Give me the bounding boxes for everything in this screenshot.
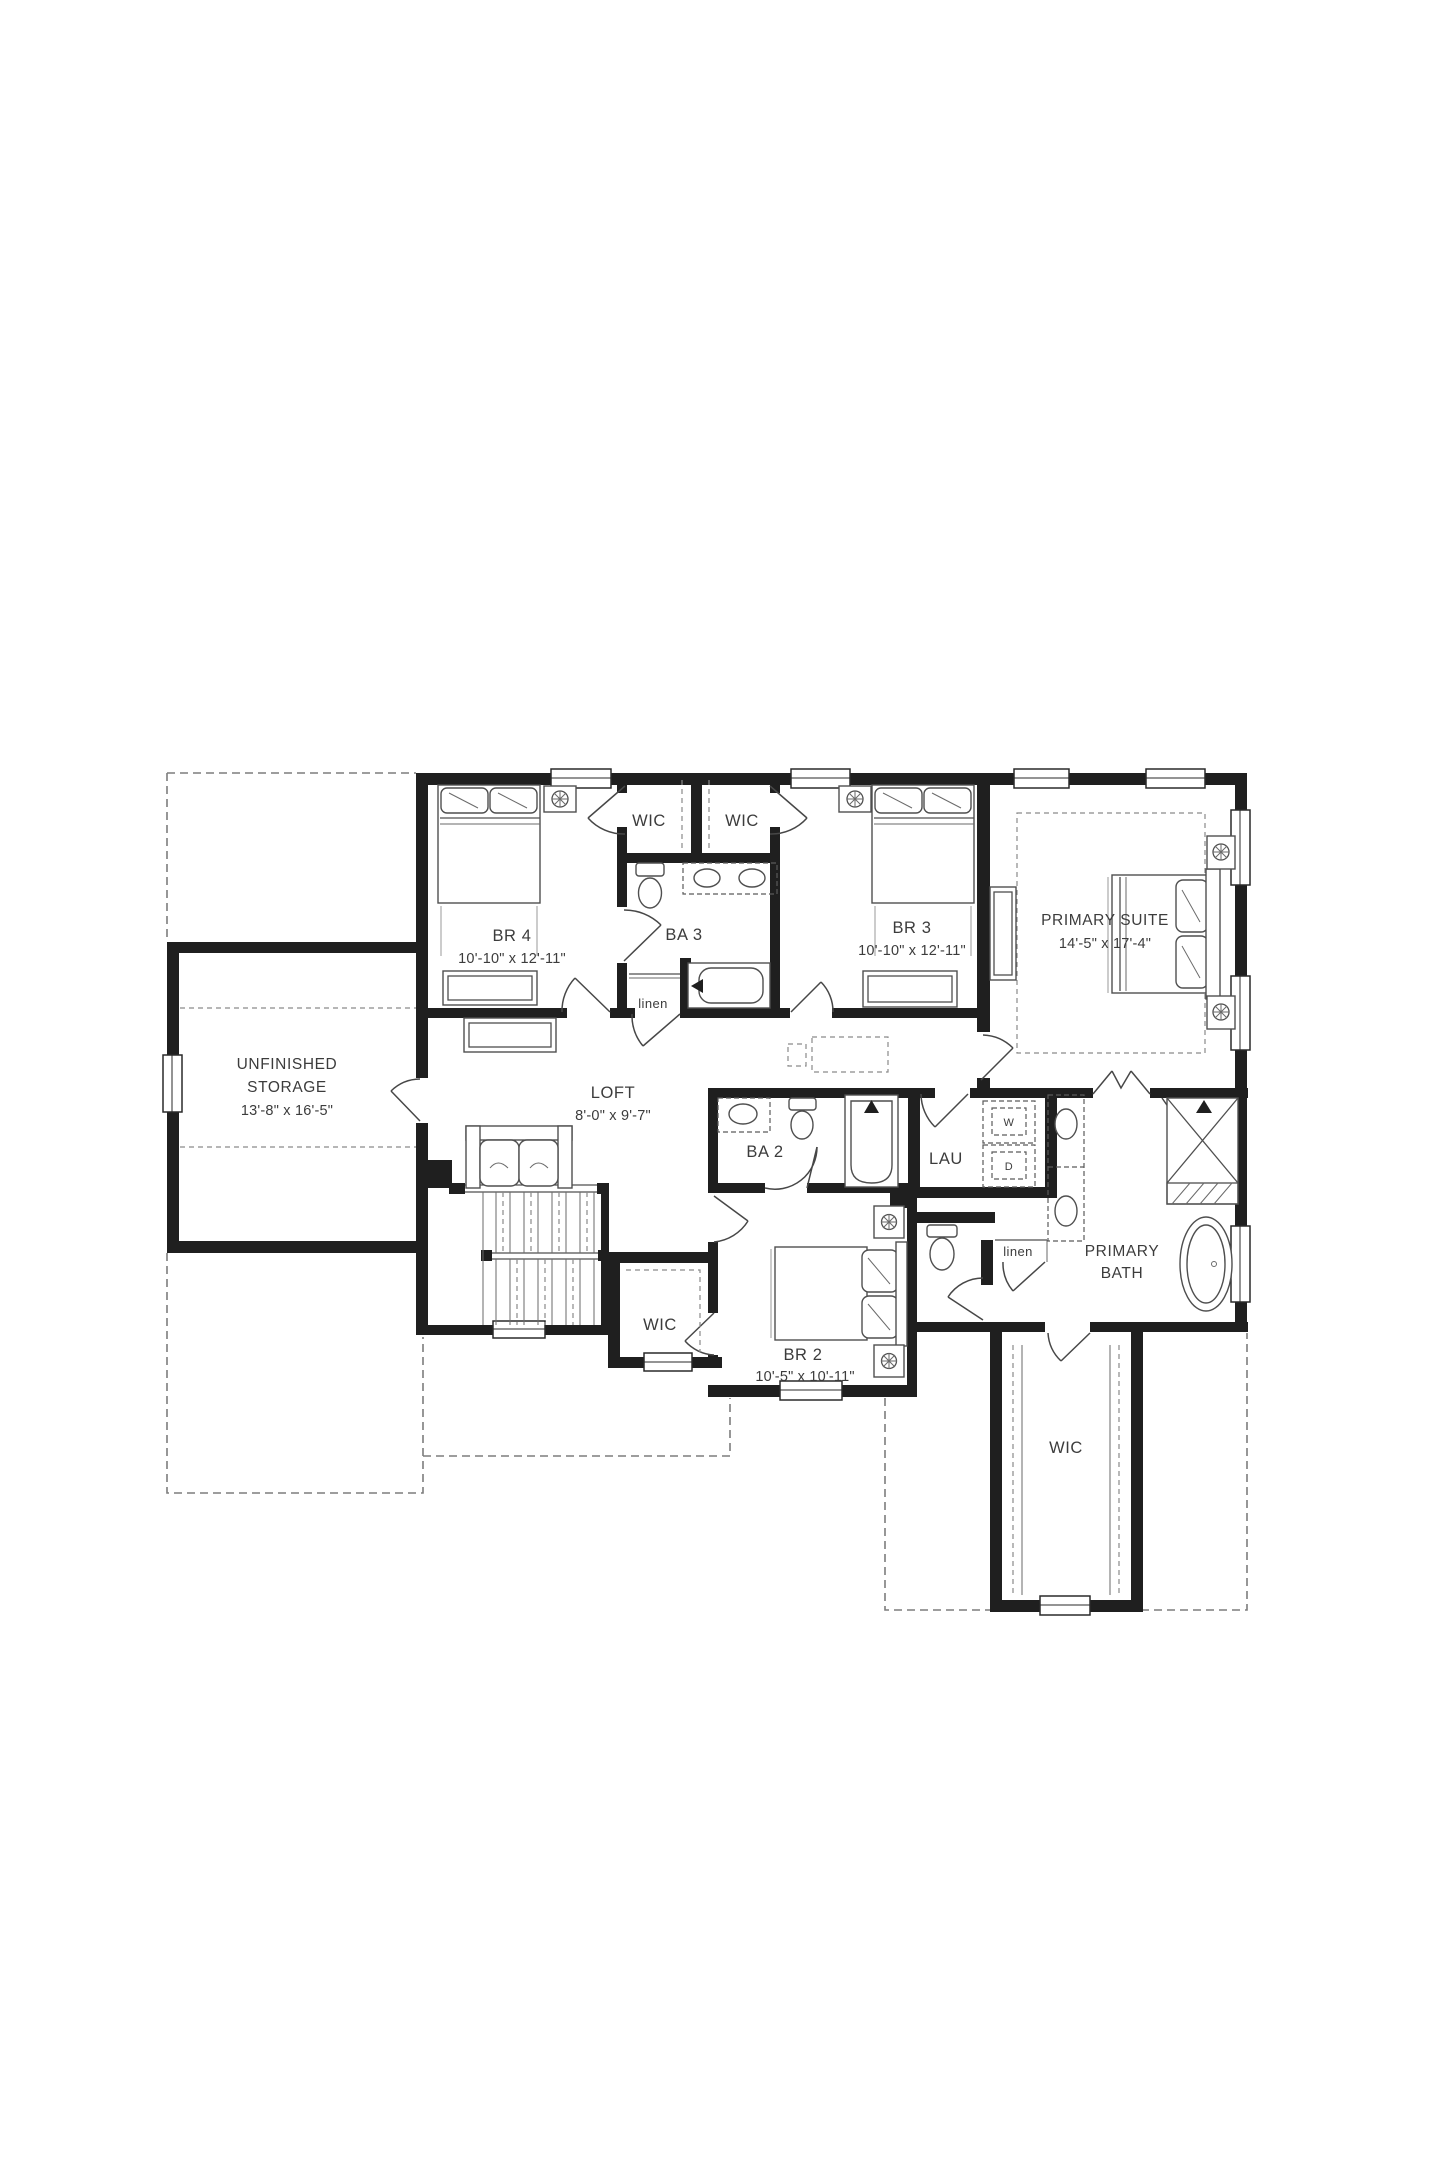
staircase — [449, 1183, 609, 1325]
linen-upper-shelf — [629, 974, 680, 978]
tub-ba3 — [688, 963, 770, 1008]
window-br3-top — [791, 769, 850, 788]
door-br3-entry — [791, 982, 833, 1012]
nightstand-primary-1 — [1207, 836, 1235, 869]
label-linen-lower: linen — [1003, 1244, 1032, 1259]
tub-primary — [1180, 1217, 1232, 1311]
toilet-water-closet — [927, 1225, 957, 1270]
label-br4-dims: 10'-10" x 12'-11" — [458, 951, 566, 967]
label-br2: BR 2 — [783, 1346, 822, 1364]
label-primary-bath-2: BATH — [1101, 1265, 1144, 1282]
label-wic-br2: WIC — [643, 1316, 677, 1334]
label-loft: LOFT — [591, 1084, 636, 1102]
label-primary-bath-1: PRIMARY — [1085, 1243, 1160, 1260]
window-wic-br2-bottom — [644, 1353, 692, 1371]
door-br2-entry — [714, 1196, 748, 1242]
label-storage-1: UNFINISHED — [237, 1056, 338, 1073]
label-wic-br3: WIC — [725, 812, 759, 830]
label-primary-suite-dims: 14'-5" x 17'-4" — [1059, 936, 1151, 952]
stair-dash-lower — [517, 1259, 573, 1325]
toilet-ba3 — [636, 863, 664, 908]
window-suite-top-2 — [1146, 769, 1205, 788]
door-lau — [921, 1094, 968, 1127]
door-br4-wic — [588, 786, 625, 834]
bed-primary — [1108, 869, 1220, 999]
label-lau: LAU — [929, 1150, 963, 1168]
label-linen-upper: linen — [638, 996, 667, 1011]
console-loft — [464, 1018, 556, 1052]
label-wic-primary: WIC — [1049, 1439, 1083, 1457]
toilet-ba2 — [789, 1098, 816, 1139]
vanity-ba3 — [683, 863, 777, 894]
door-linen-upper — [632, 1014, 680, 1046]
door-water-closet — [948, 1278, 983, 1320]
dresser-br4 — [443, 971, 537, 1005]
door-primary-suite — [981, 1035, 1013, 1080]
nightstand-br2-1 — [874, 1206, 904, 1238]
label-primary-suite: PRIMARY SUITE — [1041, 912, 1169, 929]
label-ba3: BA 3 — [665, 926, 702, 944]
door-linen-lower — [1003, 1262, 1045, 1291]
label-storage-dims: 13'-8" x 16'-5" — [241, 1103, 333, 1119]
window-br4-top — [551, 769, 611, 788]
door-ba3 — [624, 910, 661, 961]
floor-plan-svg: BR 4 10'-10" x 12'-11" WIC WIC BA 3 line… — [0, 0, 1440, 2160]
floor-plan-canvas: BR 4 10'-10" x 12'-11" WIC WIC BA 3 line… — [0, 0, 1440, 2160]
door-storage — [391, 1079, 420, 1121]
walls — [167, 773, 1248, 1612]
door-br3-wic — [770, 786, 807, 834]
windows — [163, 769, 1250, 1615]
label-loft-dims: 8'-0" x 9'-7" — [575, 1108, 651, 1124]
label-br3-dims: 10'-10" x 12'-11" — [858, 943, 966, 959]
door-br4-entry — [562, 978, 610, 1012]
double-door-primary — [1093, 1071, 1150, 1094]
window-bath-right — [1231, 1226, 1250, 1302]
label-ba2: BA 2 — [746, 1143, 783, 1161]
window-stair-bottom — [493, 1321, 545, 1338]
stair-treads-upper — [496, 1192, 594, 1253]
shower-primary — [1167, 1098, 1238, 1204]
label-br2-dims: 10'-5" x 10'-11" — [755, 1369, 854, 1385]
door-wic-primary — [1048, 1333, 1090, 1361]
label-dryer: D — [1005, 1161, 1014, 1173]
nightstand-primary-2 — [1207, 996, 1235, 1029]
stair-dash-upper — [503, 1192, 587, 1253]
nightstand-br2-2 — [874, 1345, 904, 1377]
nightstand-br4 — [544, 786, 576, 812]
nightstand-br3 — [839, 786, 871, 812]
bed-br2 — [771, 1242, 907, 1346]
label-br3: BR 3 — [892, 919, 931, 937]
furniture — [438, 785, 1235, 1377]
tub-ba2 — [845, 1095, 898, 1187]
dresser-primary — [990, 887, 1016, 980]
label-wic-br4: WIC — [632, 812, 666, 830]
window-storage-left — [163, 1055, 182, 1112]
label-washer: W — [1004, 1117, 1015, 1129]
dresser-br3 — [863, 971, 957, 1007]
label-br4: BR 4 — [492, 927, 531, 945]
roof-outlines — [167, 773, 1247, 1610]
window-wic-primary-bottom — [1040, 1596, 1090, 1615]
label-storage-2: STORAGE — [247, 1079, 327, 1096]
window-suite-top-1 — [1014, 769, 1069, 788]
sofa-loft — [466, 1126, 572, 1188]
vanity-ba2 — [718, 1098, 770, 1132]
